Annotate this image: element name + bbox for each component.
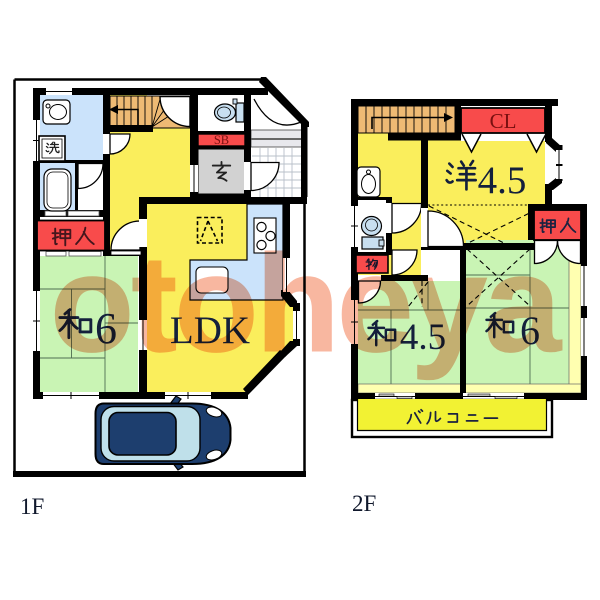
svg-text:4.5: 4.5	[478, 159, 527, 202]
svg-text:1F: 1F	[20, 494, 44, 519]
svg-text:2F: 2F	[352, 491, 376, 516]
svg-text:CL: CL	[490, 109, 517, 133]
svg-text:SB: SB	[214, 133, 229, 147]
